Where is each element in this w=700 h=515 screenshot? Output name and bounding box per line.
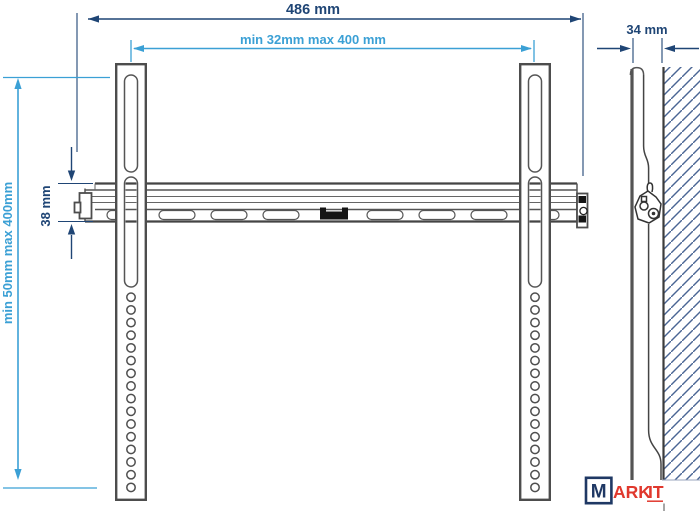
dimension-overall-width: 486 mm	[77, 2, 583, 176]
arrow-left-icon	[133, 45, 144, 52]
arrow-up-icon	[68, 224, 75, 235]
left-upright-bracket	[116, 64, 146, 500]
dimension-mount-height: min 50mm max 400mm	[0, 78, 110, 489]
wall-section	[662, 67, 700, 480]
logo-letters-it: IT	[648, 482, 664, 502]
arrow-right-icon	[620, 45, 631, 52]
logo-wordmark: ARKIT	[613, 482, 664, 502]
front-view: 38 mm 486 mm	[0, 2, 588, 500]
arrow-left-icon	[88, 15, 99, 22]
mount-width-label: min 32mm max 400 mm	[240, 32, 386, 47]
arrow-down-icon	[68, 171, 75, 182]
arrow-left-icon	[664, 45, 675, 52]
dimension-mount-width: min 32mm max 400 mm	[131, 32, 534, 62]
right-upright-bracket	[520, 64, 550, 500]
arrow-down-icon	[14, 469, 21, 480]
overall-width-label: 486 mm	[286, 2, 340, 18]
wall-rail	[75, 184, 588, 228]
rail-left-endcap	[75, 193, 92, 219]
arrow-right-icon	[521, 45, 532, 52]
dimension-depth: 34 mm	[597, 22, 699, 63]
logo-letters-ark: ARK	[613, 482, 651, 502]
rail-right-endcap	[577, 194, 588, 228]
depth-label: 34 mm	[626, 22, 667, 37]
side-view: 34 mm	[597, 22, 700, 511]
rail-height-label: 38 mm	[38, 185, 53, 226]
drawing-canvas: 38 mm 486 mm	[0, 0, 700, 515]
tv-wall-mount-drawing: 38 mm 486 mm	[0, 0, 700, 515]
logo: M ARKIT	[586, 478, 664, 503]
arrow-up-icon	[14, 78, 21, 89]
arrow-right-icon	[570, 15, 581, 22]
mounting-plate-profile	[630, 68, 661, 480]
logo-letter-m: M	[591, 482, 607, 503]
lock-detail	[635, 183, 661, 223]
mount-height-label: min 50mm max 400mm	[0, 182, 15, 324]
